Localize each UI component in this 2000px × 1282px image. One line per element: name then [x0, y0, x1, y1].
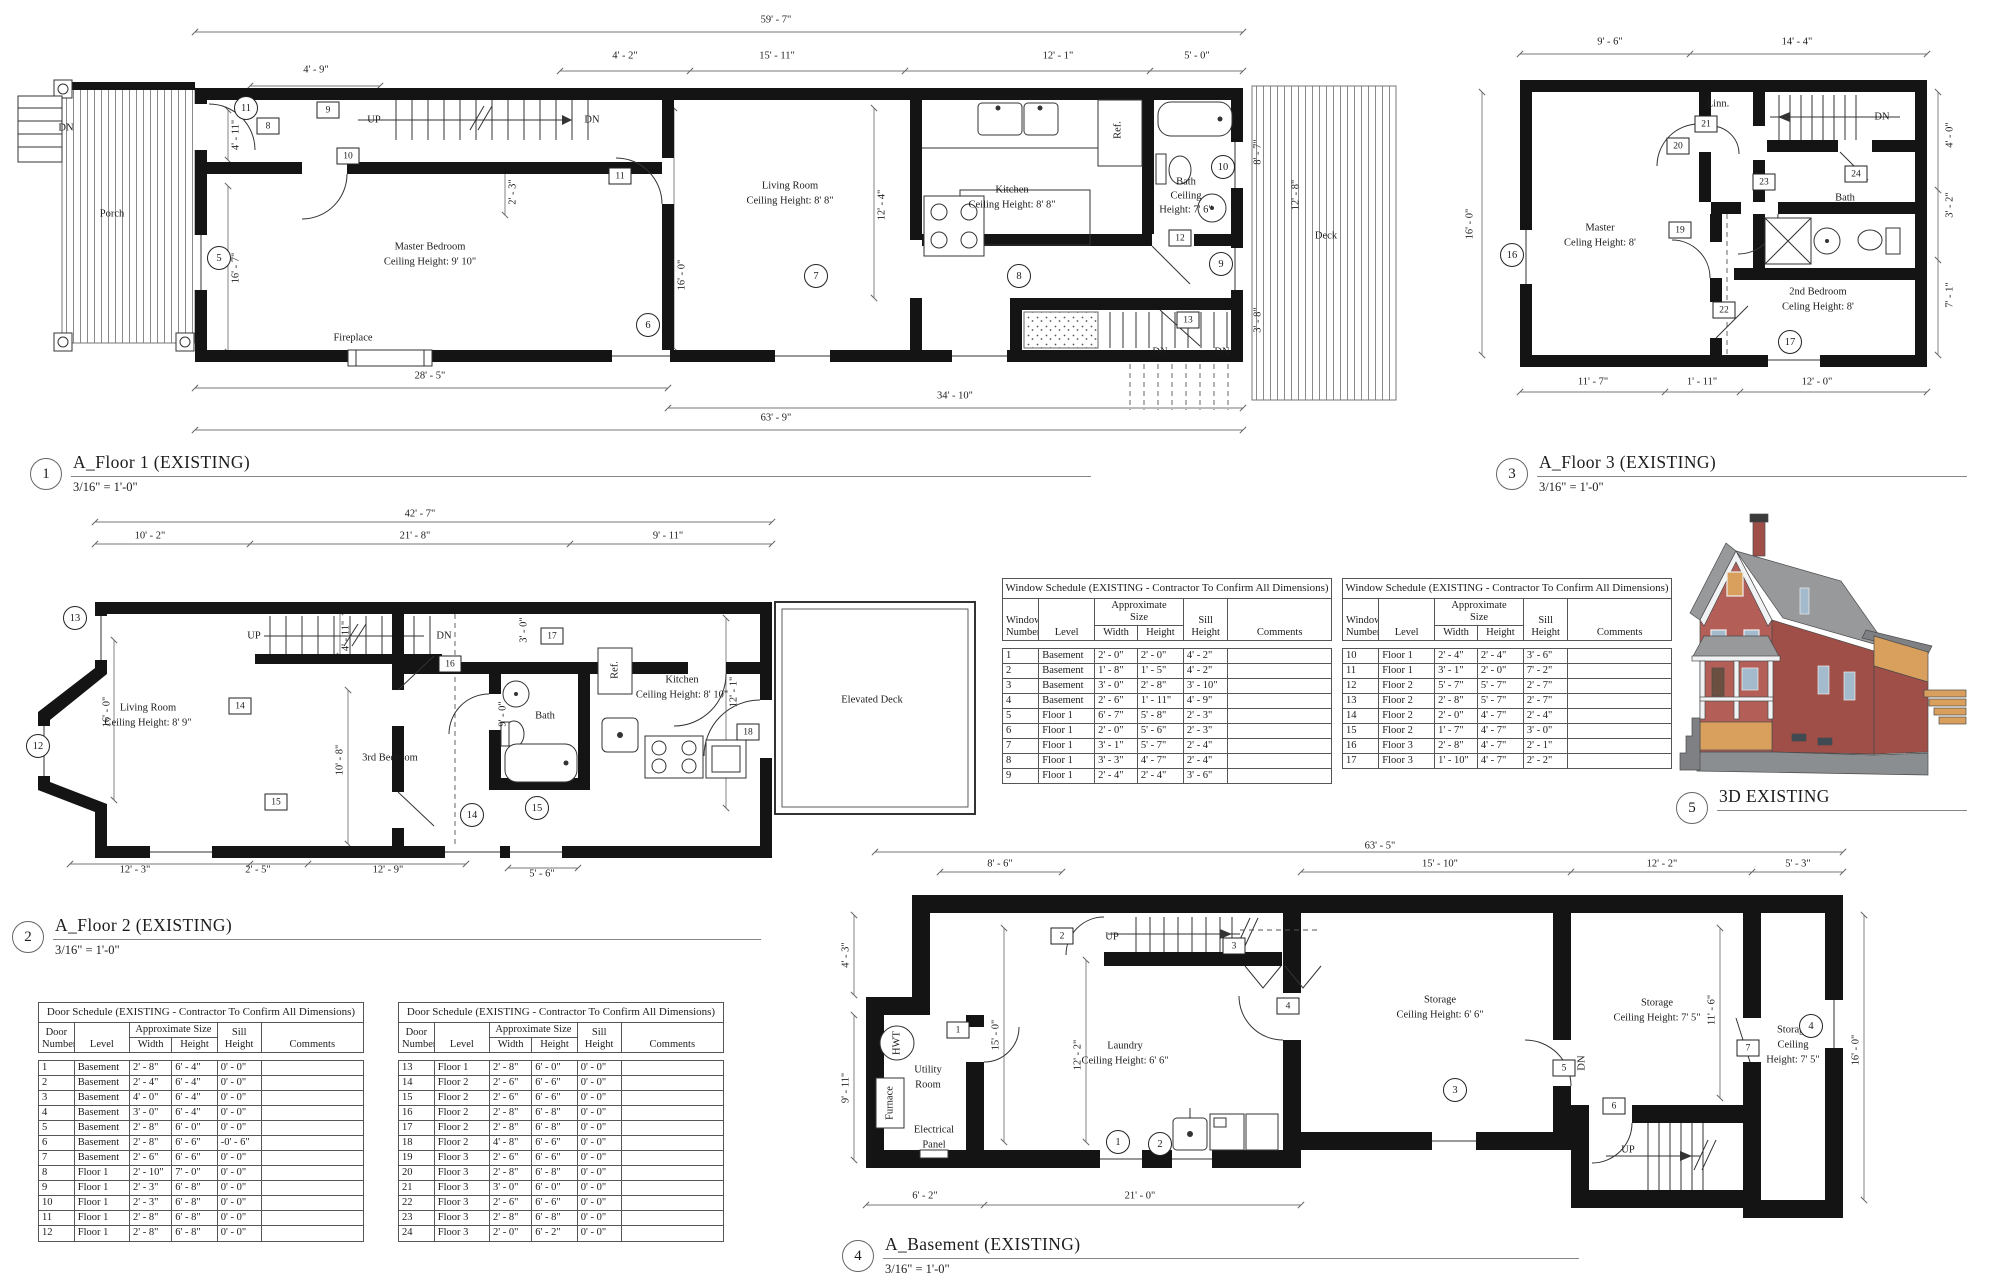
table-cell: 6' - 2" — [532, 1226, 578, 1241]
table-cell — [1568, 663, 1672, 678]
table-cell: 2' - 8" — [1137, 678, 1183, 693]
table-cell: 1 — [1003, 648, 1039, 663]
table-cell: 3' - 10" — [1183, 678, 1227, 693]
table-cell: 0' - 0" — [577, 1151, 621, 1166]
door-marker: 8 — [257, 118, 280, 135]
plan-scale: 3/16" = 1'-0" — [53, 943, 761, 958]
dim-label: 8' - 7" — [1252, 139, 1263, 164]
table-cell: Basement — [74, 1121, 129, 1136]
table-cell: 0' - 0" — [577, 1090, 621, 1105]
fixture-label: Electrical — [914, 1124, 954, 1135]
table-cell: 3' - 3" — [1095, 754, 1138, 769]
dim-label: 4' - 11" — [230, 120, 241, 150]
table-cell: 6' - 0" — [532, 1060, 578, 1075]
table-cell — [261, 1181, 363, 1196]
table-row: 24Floor 32' - 0"6' - 2"0' - 0" — [399, 1226, 724, 1241]
table-cell: 6' - 6" — [532, 1136, 578, 1151]
table-cell: Basement — [74, 1105, 129, 1120]
table-cell: 2' - 8" — [1435, 739, 1478, 754]
table-cell: 0' - 0" — [577, 1121, 621, 1136]
header-gap — [39, 1052, 364, 1060]
table-row: 13Floor 12' - 8"6' - 0"0' - 0" — [399, 1060, 724, 1075]
dim-label: 9' - 11" — [840, 1073, 851, 1103]
stair-label: UP — [247, 630, 260, 641]
table-cell — [261, 1196, 363, 1211]
table-cell: 22 — [399, 1196, 435, 1211]
window-marker: 12 — [26, 734, 50, 758]
table-cell: 2' - 10" — [130, 1166, 172, 1181]
table-row: 16Floor 32' - 8"4' - 7"2' - 1" — [1343, 739, 1672, 754]
table-row: 3Basement3' - 0"2' - 8"3' - 10" — [1003, 678, 1332, 693]
table-cell — [1568, 678, 1672, 693]
table-cell: 2' - 6" — [1095, 694, 1138, 709]
door-marker: 4 — [1277, 998, 1300, 1015]
table-cell: 12 — [39, 1226, 75, 1241]
table-row: 7Basement2' - 6"6' - 6"0' - 0" — [39, 1151, 364, 1166]
table-cell: 4' - 8" — [490, 1136, 532, 1151]
door-marker: 19 — [1669, 222, 1692, 239]
table-cell: -0' - 6" — [217, 1136, 261, 1151]
table-cell: 0' - 0" — [577, 1226, 621, 1241]
table-cell: 17 — [1343, 754, 1379, 769]
plan-scale: 3/16" = 1'-0" — [883, 1262, 1579, 1277]
col-header-width: Width — [1095, 625, 1138, 640]
col-header-number: Window Number — [1343, 598, 1379, 640]
table-cell: 2' - 4" — [1523, 709, 1567, 724]
table-cell: 0' - 0" — [577, 1136, 621, 1151]
room-label: Ceiling Height: 6' 6" — [1082, 1055, 1169, 1066]
dim-label: 12' - 8" — [1290, 180, 1301, 211]
door-schedule-1: Door Schedule (EXISTING - Contractor To … — [38, 1002, 364, 1242]
table-cell: 16 — [399, 1105, 435, 1120]
table-cell: 3' - 6" — [1523, 648, 1567, 663]
col-header-number: Window Number — [1003, 598, 1039, 640]
room-label: Storage — [1424, 994, 1456, 1005]
table-cell: 8 — [1003, 754, 1039, 769]
fixture-label: Panel — [922, 1139, 945, 1150]
room-label: Bath — [535, 710, 555, 721]
table-cell: Floor 2 — [1379, 694, 1435, 709]
table-cell — [1568, 754, 1672, 769]
plan-title: A_Floor 1 (EXISTING) — [71, 452, 1091, 475]
table-cell: 0' - 0" — [217, 1105, 261, 1120]
table-cell: 6' - 4" — [172, 1075, 218, 1090]
header-gap — [1343, 640, 1672, 648]
table-row: 17Floor 22' - 8"6' - 8"0' - 0" — [399, 1121, 724, 1136]
table-cell: 2' - 8" — [130, 1121, 172, 1136]
table-row: 2Basement1' - 8"1' - 5"4' - 2" — [1003, 663, 1332, 678]
room-label: Ceiling Height: 7' 5" — [1614, 1012, 1701, 1023]
table-cell: Floor 2 — [434, 1121, 489, 1136]
col-header-height: Height — [172, 1037, 218, 1052]
table-row: 21Floor 33' - 0"6' - 0"0' - 0" — [399, 1181, 724, 1196]
table-cell: 6' - 4" — [172, 1105, 218, 1120]
door-marker: 22 — [1713, 302, 1736, 319]
window-marker: 7 — [804, 264, 828, 288]
table-cell: 6' - 6" — [532, 1090, 578, 1105]
table-cell: 2' - 8" — [130, 1060, 172, 1075]
table-cell — [1228, 754, 1332, 769]
table-cell — [1568, 709, 1672, 724]
table-cell — [621, 1166, 723, 1181]
view-title-1: 1A_Floor 1 (EXISTING)3/16" = 1'-0" — [30, 452, 1091, 495]
table-cell — [1228, 739, 1332, 754]
table-cell: 0' - 0" — [217, 1226, 261, 1241]
room-label: Ceiling Height: 9' 10" — [384, 256, 476, 267]
drawing-sheet: 59' - 7"4' - 2"15' - 11"12' - 1"5' - 0"4… — [0, 0, 2000, 1282]
dim-label: 14' - 4" — [1782, 36, 1813, 47]
table-cell: 5' - 6" — [1137, 724, 1183, 739]
table-cell: 1' - 7" — [1435, 724, 1478, 739]
window-marker: 8 — [1007, 264, 1031, 288]
window-marker: 17 — [1778, 330, 1802, 354]
table-cell: 3' - 1" — [1095, 739, 1138, 754]
door-marker: 6 — [1603, 1098, 1626, 1115]
table-cell: 2' - 8" — [490, 1121, 532, 1136]
window-schedule-1: Window Schedule (EXISTING - Contractor T… — [1002, 578, 1332, 784]
dim-label: 16' - 0" — [1464, 209, 1475, 240]
door-marker: 15 — [265, 794, 288, 811]
dim-label: 9' - 6" — [1597, 36, 1622, 47]
table-cell: 1' - 11" — [1137, 694, 1183, 709]
window-marker: 10 — [1211, 155, 1235, 179]
schedule-title: Window Schedule (EXISTING - Contractor T… — [1343, 579, 1672, 599]
table-cell: Floor 3 — [434, 1226, 489, 1241]
door-marker: 23 — [1753, 174, 1776, 191]
table-cell: 9 — [1003, 769, 1039, 784]
room-label: Utility — [914, 1064, 941, 1075]
table-cell: 6' - 0" — [532, 1181, 578, 1196]
table-cell: 4' - 9" — [1183, 694, 1227, 709]
dim-label: 16' - 0" — [101, 697, 112, 728]
table-cell: 2' - 4" — [1183, 739, 1227, 754]
table-row: 6Basement2' - 8"6' - 6"-0' - 6" — [39, 1136, 364, 1151]
dim-label: 4' - 11" — [340, 621, 351, 651]
table-cell — [621, 1121, 723, 1136]
table-cell: Floor 1 — [74, 1226, 129, 1241]
room-label: Ceiling Height: 8' 8" — [969, 199, 1056, 210]
stair-label: DN — [1576, 1055, 1587, 1070]
table-cell — [261, 1151, 363, 1166]
stair-label: DN — [1874, 111, 1889, 122]
table-cell: Basement — [74, 1090, 129, 1105]
table-cell: 2' - 3" — [130, 1181, 172, 1196]
col-header-comments: Comments — [261, 1022, 363, 1052]
table-cell: 0' - 0" — [577, 1196, 621, 1211]
table-row: 11Floor 13' - 1"2' - 0"7' - 2" — [1343, 663, 1672, 678]
room-label: Ceiling Height: 8' 10" — [636, 689, 728, 700]
table-cell: 0' - 0" — [217, 1121, 261, 1136]
table-cell: 5 — [39, 1121, 75, 1136]
door-marker: 21 — [1695, 116, 1718, 133]
table-cell: 3' - 6" — [1183, 769, 1227, 784]
table-cell: 2' - 6" — [490, 1090, 532, 1105]
view-title-3: 3A_Floor 3 (EXISTING)3/16" = 1'-0" — [1496, 452, 1967, 495]
table-cell: Floor 2 — [1379, 724, 1435, 739]
room-label: Elevated Deck — [841, 694, 903, 705]
table-cell: 2' - 4" — [130, 1075, 172, 1090]
room-label: Master — [1585, 222, 1614, 233]
col-header-size: Approximate Size — [1435, 598, 1524, 625]
dim-label: 5' - 3" — [1785, 858, 1810, 869]
door-schedule-1-table: Door Schedule (EXISTING - Contractor To … — [38, 1002, 364, 1242]
window-marker: 1 — [1106, 1130, 1130, 1154]
table-cell: 2' - 0" — [1435, 709, 1478, 724]
table-cell: 0' - 0" — [217, 1166, 261, 1181]
table-cell: 17 — [399, 1121, 435, 1136]
window-marker: 9 — [1209, 252, 1233, 276]
plan-scale: 3/16" = 1'-0" — [71, 480, 1091, 495]
dim-label: 28' - 5" — [415, 370, 446, 381]
table-cell: 1' - 5" — [1137, 663, 1183, 678]
table-cell: Floor 3 — [434, 1166, 489, 1181]
table-row: 6Floor 12' - 0"5' - 6"2' - 3" — [1003, 724, 1332, 739]
table-cell: 4' - 2" — [1183, 648, 1227, 663]
col-header-comments: Comments — [1568, 598, 1672, 640]
title-underline — [1717, 810, 1967, 811]
table-cell: 3' - 1" — [1435, 663, 1478, 678]
table-cell: Floor 2 — [434, 1136, 489, 1151]
window-marker: 3 — [1443, 1078, 1467, 1102]
door-schedule-2: Door Schedule (EXISTING - Contractor To … — [398, 1002, 724, 1242]
table-cell: 6' - 8" — [172, 1226, 218, 1241]
table-cell — [621, 1226, 723, 1241]
table-cell — [261, 1105, 363, 1120]
dim-label: 9' - 0" — [497, 701, 508, 726]
col-header-size: Approximate Size — [490, 1022, 578, 1037]
dim-label: 3' - 8" — [1252, 307, 1263, 332]
table-cell: 2' - 7" — [1523, 678, 1567, 693]
window-marker: 5 — [207, 246, 231, 270]
table-cell: 3' - 0" — [490, 1181, 532, 1196]
stair-label: DN — [1214, 346, 1229, 357]
table-cell: 12 — [1343, 678, 1379, 693]
table-cell: 0' - 0" — [217, 1060, 261, 1075]
table-cell: 16 — [1343, 739, 1379, 754]
plan-scale: 3/16" = 1'-0" — [1537, 480, 1967, 495]
dim-label: 8' - 6" — [987, 858, 1012, 869]
table-cell: 5' - 8" — [1137, 709, 1183, 724]
room-label: Kitchen — [995, 184, 1028, 195]
table-cell — [1228, 709, 1332, 724]
table-row: 5Basement2' - 8"6' - 0"0' - 0" — [39, 1121, 364, 1136]
door-schedule-2-table: Door Schedule (EXISTING - Contractor To … — [398, 1002, 724, 1242]
table-cell: 4' - 7" — [1137, 754, 1183, 769]
header-gap — [399, 1052, 724, 1060]
door-marker: 20 — [1667, 138, 1690, 155]
table-cell: Floor 1 — [1039, 724, 1095, 739]
schedule-title: Door Schedule (EXISTING - Contractor To … — [39, 1003, 364, 1023]
col-header-number: Door Number — [39, 1022, 75, 1052]
table-row: 14Floor 22' - 0"4' - 7"2' - 4" — [1343, 709, 1672, 724]
table-row: 2Basement2' - 4"6' - 4"0' - 0" — [39, 1075, 364, 1090]
table-cell: 6' - 6" — [532, 1151, 578, 1166]
stair-label: UP — [1105, 931, 1118, 942]
dim-label: 12' - 4" — [876, 190, 887, 221]
table-row: 4Basement2' - 6"1' - 11"4' - 9" — [1003, 694, 1332, 709]
table-row: 12Floor 25' - 7"5' - 7"2' - 7" — [1343, 678, 1672, 693]
table-cell: 23 — [399, 1211, 435, 1226]
table-row: 10Floor 12' - 3"6' - 8"0' - 0" — [39, 1196, 364, 1211]
table-cell: 5 — [1003, 709, 1039, 724]
table-cell: 5' - 7" — [1137, 739, 1183, 754]
table-cell: Floor 3 — [434, 1211, 489, 1226]
dim-label: 4' - 3" — [840, 942, 851, 967]
table-cell: Basement — [1039, 648, 1095, 663]
table-cell: Floor 1 — [74, 1196, 129, 1211]
dim-label: 4' - 9" — [303, 64, 328, 75]
table-cell: Floor 2 — [434, 1090, 489, 1105]
table-cell: 0' - 0" — [577, 1181, 621, 1196]
table-row: 23Floor 32' - 8"6' - 8"0' - 0" — [399, 1211, 724, 1226]
col-header-width: Width — [1435, 625, 1478, 640]
table-cell: 7' - 0" — [172, 1166, 218, 1181]
table-cell: Floor 3 — [434, 1196, 489, 1211]
table-row: 22Floor 32' - 6"6' - 6"0' - 0" — [399, 1196, 724, 1211]
table-cell: 2' - 0" — [1095, 648, 1138, 663]
table-cell: 3' - 0" — [1523, 724, 1567, 739]
door-marker: 14 — [229, 698, 252, 715]
table-cell — [1228, 648, 1332, 663]
table-cell: Floor 1 — [74, 1166, 129, 1181]
table-row: 3Basement4' - 0"6' - 4"0' - 0" — [39, 1090, 364, 1105]
table-row: 12Floor 12' - 8"6' - 8"0' - 0" — [39, 1226, 364, 1241]
table-cell — [621, 1196, 723, 1211]
table-cell: 2' - 4" — [1095, 769, 1138, 784]
col-header-width: Width — [130, 1037, 172, 1052]
dim-label: 5' - 0" — [1184, 50, 1209, 61]
table-cell: 19 — [399, 1151, 435, 1166]
room-label: Porch — [100, 208, 125, 219]
table-cell — [1228, 769, 1332, 784]
table-cell: 4 — [39, 1105, 75, 1120]
table-cell: 8 — [39, 1166, 75, 1181]
floor2-plan — [36, 522, 975, 868]
col-header-level: Level — [1379, 598, 1435, 640]
table-row: 19Floor 32' - 6"6' - 6"0' - 0" — [399, 1151, 724, 1166]
room-label: Ceiling Height: 6' 6" — [1397, 1009, 1484, 1020]
table-cell: 5' - 7" — [1477, 694, 1523, 709]
table-cell: 2' - 7" — [1523, 694, 1567, 709]
room-label: Fireplace — [333, 332, 372, 343]
table-cell: 2' - 3" — [1183, 709, 1227, 724]
dim-label: 21' - 8" — [400, 530, 431, 541]
table-cell: 6' - 8" — [532, 1121, 578, 1136]
room-label: Room — [915, 1079, 941, 1090]
room-label: Ceiling Height: 8' 8" — [747, 195, 834, 206]
table-row: 10Floor 12' - 4"2' - 4"3' - 6" — [1343, 648, 1672, 663]
dim-label: 4' - 2" — [612, 50, 637, 61]
table-cell: Floor 3 — [434, 1181, 489, 1196]
table-cell: Floor 1 — [1039, 739, 1095, 754]
col-header-comments: Comments — [621, 1022, 723, 1052]
table-cell: Floor 1 — [1379, 648, 1435, 663]
table-cell: 6' - 4" — [172, 1060, 218, 1075]
title-underline — [1537, 476, 1967, 477]
dim-label: 16' - 0" — [676, 260, 687, 291]
table-cell: 2 — [39, 1075, 75, 1090]
table-cell: Basement — [74, 1060, 129, 1075]
table-row: 1Basement2' - 0"2' - 0"4' - 2" — [1003, 648, 1332, 663]
table-cell: 3 — [1003, 678, 1039, 693]
basement-plan — [854, 852, 1864, 1218]
table-cell — [1228, 724, 1332, 739]
dim-label: 10' - 2" — [135, 530, 166, 541]
table-cell: Floor 3 — [1379, 739, 1435, 754]
window-marker: 15 — [525, 796, 549, 820]
table-cell — [1228, 694, 1332, 709]
dim-label: 12' - 3" — [120, 864, 151, 875]
table-cell: 18 — [399, 1136, 435, 1151]
table-cell: 24 — [399, 1226, 435, 1241]
dim-label: 3' - 2" — [1944, 192, 1955, 217]
table-cell — [621, 1181, 723, 1196]
view-number-badge: 3 — [1496, 458, 1528, 490]
room-label: Celing Height: 8' — [1782, 301, 1854, 312]
stair-label: DN — [1152, 346, 1167, 357]
window-schedule-2-table: Window Schedule (EXISTING - Contractor T… — [1342, 578, 1672, 769]
table-cell: Basement — [74, 1075, 129, 1090]
fixture-label: Ref. — [1112, 121, 1123, 139]
dim-label: 34' - 10" — [937, 390, 973, 401]
table-row: 9Floor 12' - 4"2' - 4"3' - 6" — [1003, 769, 1332, 784]
room-label: Bath — [1176, 176, 1196, 187]
table-cell: 6' - 8" — [172, 1181, 218, 1196]
room-label: Laundry — [1107, 1040, 1143, 1051]
table-cell — [621, 1105, 723, 1120]
table-cell — [621, 1211, 723, 1226]
table-cell: 2' - 0" — [1477, 663, 1523, 678]
room-label: Living Room — [120, 702, 176, 713]
table-cell: 6' - 0" — [172, 1121, 218, 1136]
table-cell: Floor 2 — [434, 1075, 489, 1090]
door-marker: 13 — [1177, 312, 1200, 329]
plan-title: A_Basement (EXISTING) — [883, 1234, 1579, 1257]
table-cell: 14 — [399, 1075, 435, 1090]
table-cell: 2' - 3" — [1183, 724, 1227, 739]
table-cell: 0' - 0" — [217, 1151, 261, 1166]
table-row: 15Floor 22' - 6"6' - 6"0' - 0" — [399, 1090, 724, 1105]
dim-label: 59' - 7" — [761, 14, 792, 25]
table-cell: 9 — [39, 1181, 75, 1196]
table-cell: 6' - 8" — [172, 1211, 218, 1226]
table-cell — [261, 1090, 363, 1105]
col-header-number: Door Number — [399, 1022, 435, 1052]
dim-label: 4' - 0" — [1944, 122, 1955, 147]
table-cell: Floor 2 — [1379, 709, 1435, 724]
plan-title: A_Floor 3 (EXISTING) — [1537, 452, 1967, 475]
room-label: Ceiling — [1171, 190, 1202, 201]
col-header-width: Width — [490, 1037, 532, 1052]
table-row: 7Floor 13' - 1"5' - 7"2' - 4" — [1003, 739, 1332, 754]
col-header-sill: Sill Height — [1183, 598, 1227, 640]
table-cell — [621, 1090, 723, 1105]
view-title-5: 53D EXISTING — [1676, 786, 1967, 824]
table-cell: 20 — [399, 1166, 435, 1181]
table-cell: 2' - 3" — [130, 1196, 172, 1211]
table-cell — [261, 1226, 363, 1241]
col-header-height: Height — [1137, 625, 1183, 640]
dim-label: 16' - 7" — [230, 253, 241, 284]
col-header-sill: Sill Height — [217, 1022, 261, 1052]
dim-label: 6' - 2" — [912, 1190, 937, 1201]
title-underline — [53, 939, 761, 940]
dim-label: 15' - 0" — [990, 1020, 1001, 1051]
title-underline — [71, 476, 1091, 477]
table-cell: 0' - 0" — [217, 1211, 261, 1226]
dim-label: 63' - 5" — [1365, 840, 1396, 851]
room-label: Deck — [1315, 230, 1337, 241]
